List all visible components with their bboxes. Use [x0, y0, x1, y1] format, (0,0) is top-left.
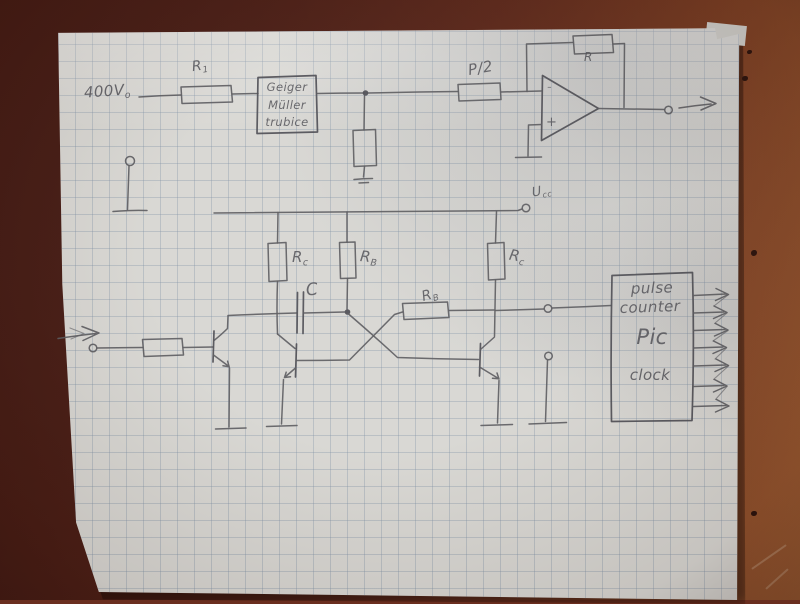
wire — [501, 91, 541, 92]
counter-label-clock: clock — [612, 366, 688, 384]
wire — [347, 279, 348, 310]
q2-transistor — [267, 334, 298, 427]
anode-resistor — [353, 130, 377, 167]
flipflop-output-terminal — [544, 305, 552, 313]
ground-symbol — [267, 426, 298, 427]
feedback-wire — [614, 44, 625, 108]
junction-dot — [363, 90, 369, 96]
noninverting-input-wire — [528, 125, 542, 157]
capacitor-label: C — [305, 279, 319, 300]
wire — [228, 313, 297, 316]
opamp-minus-label: - — [547, 80, 552, 95]
q3-emitter — [480, 367, 500, 379]
wire — [498, 381, 500, 424]
ground-symbol — [529, 423, 567, 425]
q3-base-bar — [480, 344, 481, 377]
q3-transistor — [480, 337, 513, 426]
counter-label-pulse: pulse — [614, 278, 691, 299]
wire — [552, 306, 611, 309]
output-arrow — [679, 97, 716, 110]
wire — [449, 310, 494, 311]
input-resistor — [143, 339, 184, 357]
rb-left-label: RB — [359, 247, 379, 269]
output-terminal — [665, 106, 673, 114]
q1-base-bar — [213, 331, 214, 362]
q2-collector — [278, 334, 296, 349]
wire — [278, 212, 497, 244]
r1-resistor — [181, 86, 233, 104]
wire — [495, 280, 496, 336]
counter-label-pic: Pic — [614, 325, 690, 349]
wire — [282, 380, 284, 425]
q1-transistor — [213, 316, 246, 429]
ucc-label: Ucc — [531, 182, 553, 201]
wire — [229, 368, 230, 427]
trigger-input-arrow — [58, 327, 99, 341]
wire — [233, 94, 259, 95]
terminal-circle — [126, 157, 135, 166]
p2-resistor — [458, 83, 501, 101]
hv-return-terminal — [113, 157, 147, 212]
rc-left-label: Rc — [292, 248, 308, 268]
q1-collector — [214, 316, 228, 341]
flipflop-section — [58, 204, 611, 429]
ground-symbol — [113, 210, 147, 211]
reference-terminal — [545, 352, 553, 360]
q1-emitter — [214, 355, 230, 367]
wire — [304, 312, 345, 313]
q2-emitter — [285, 368, 296, 378]
ground-symbol — [216, 428, 247, 429]
q3-collector — [481, 337, 495, 350]
wire — [277, 282, 278, 335]
hv-supply-label: 400Vo — [83, 80, 131, 103]
coupling-capacitor — [297, 292, 304, 334]
ucc-rail — [214, 209, 522, 213]
wire — [546, 361, 548, 422]
ground-symbol — [516, 157, 542, 158]
wire — [318, 92, 459, 94]
counter-label-counter: counter — [612, 297, 689, 318]
output-wire — [599, 109, 665, 110]
opamp-plus-label: + — [546, 115, 557, 130]
cross-coupling-b — [297, 312, 403, 361]
flipflop-output-wire — [496, 309, 545, 311]
cross-coupling-a — [348, 314, 479, 360]
ground-symbol — [481, 425, 513, 426]
ground-symbol — [354, 179, 373, 184]
ucc-terminal — [522, 204, 530, 212]
input-terminal — [89, 344, 97, 352]
wire — [97, 348, 143, 349]
rb-left-resistor — [340, 242, 357, 279]
counter-output-arrows — [694, 289, 730, 413]
hv-wire — [139, 95, 181, 97]
geiger-tube-label: Geiger Müller trubice — [257, 79, 317, 132]
wire — [184, 347, 214, 348]
feedback-r-label: R — [584, 50, 593, 64]
rc-right-resistor — [488, 243, 506, 281]
wire — [364, 167, 365, 178]
rc-left-resistor — [268, 243, 287, 282]
anode-resistor-wire — [364, 96, 365, 130]
rc-right-label: Rc — [507, 246, 527, 269]
trigger-input-arrow — [70, 328, 84, 339]
wire — [128, 166, 130, 210]
feedback-resistor — [573, 35, 614, 55]
r1-label: R1 — [191, 57, 209, 77]
